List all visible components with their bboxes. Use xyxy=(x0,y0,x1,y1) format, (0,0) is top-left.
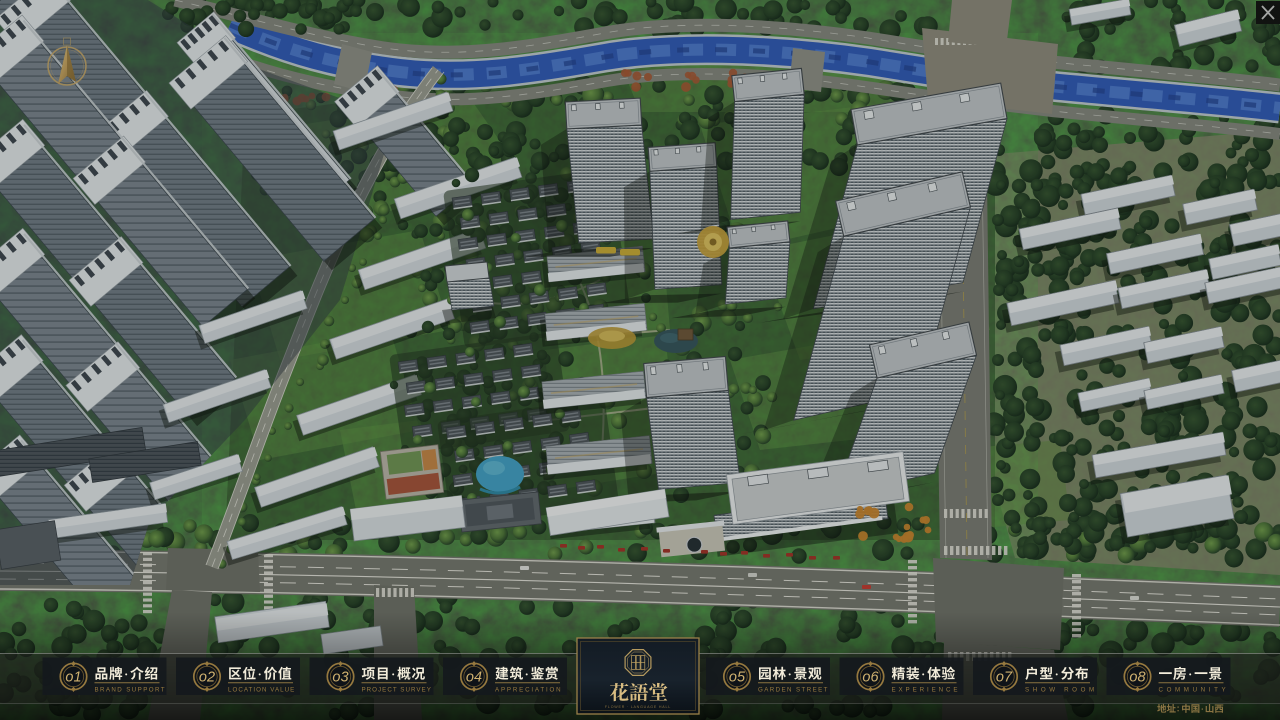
svg-text:o6: o6 xyxy=(862,670,879,686)
svg-text:EXPERIENCE: EXPERIENCE xyxy=(892,687,961,694)
svg-text:GARDEN STREET: GARDEN STREET xyxy=(758,687,829,694)
svg-text:o5: o5 xyxy=(729,670,746,686)
svg-text:FLOWER · LANGUAGE HALL: FLOWER · LANGUAGE HALL xyxy=(605,705,671,709)
svg-text:SHOW ROOM: SHOW ROOM xyxy=(1025,687,1098,694)
svg-text:o8: o8 xyxy=(1129,670,1145,686)
svg-text:LOCATION VALUE: LOCATION VALUE xyxy=(228,687,295,694)
svg-text:o2: o2 xyxy=(199,670,215,686)
svg-text:BRAND SUPPORT: BRAND SUPPORT xyxy=(95,687,166,694)
svg-text:o3: o3 xyxy=(332,670,348,686)
svg-text:COMMUNITY: COMMUNITY xyxy=(1159,687,1230,694)
svg-text:o1: o1 xyxy=(65,670,81,686)
svg-text:APPRECIATION: APPRECIATION xyxy=(495,687,562,694)
svg-text:o7: o7 xyxy=(996,670,1013,686)
svg-text:o4: o4 xyxy=(466,670,482,686)
svg-text:PROJECT SURVEY: PROJECT SURVEY xyxy=(362,687,432,694)
